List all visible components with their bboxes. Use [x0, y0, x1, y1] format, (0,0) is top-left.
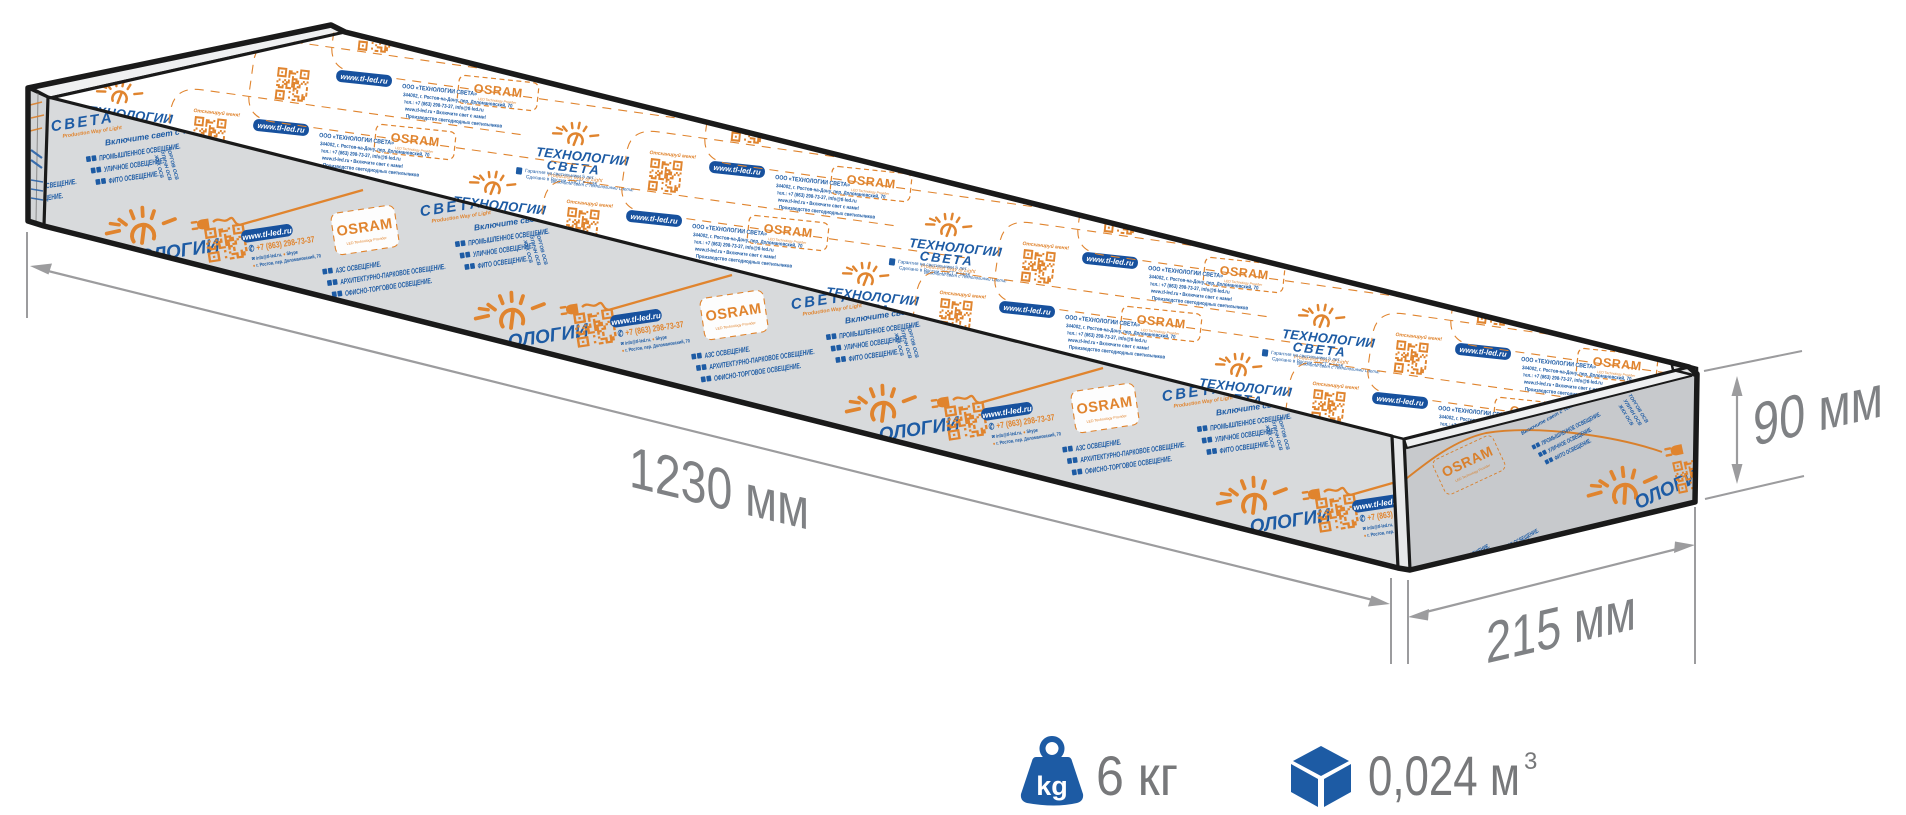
svg-text:3: 3	[1524, 748, 1537, 775]
svg-text:1230 мм: 1230 мм	[629, 435, 809, 543]
svg-text:kg: kg	[1036, 771, 1068, 801]
svg-text:0,024 м: 0,024 м	[1368, 744, 1520, 807]
svg-text:90 мм: 90 мм	[1753, 362, 1883, 459]
svg-text:6 кг: 6 кг	[1096, 744, 1178, 807]
